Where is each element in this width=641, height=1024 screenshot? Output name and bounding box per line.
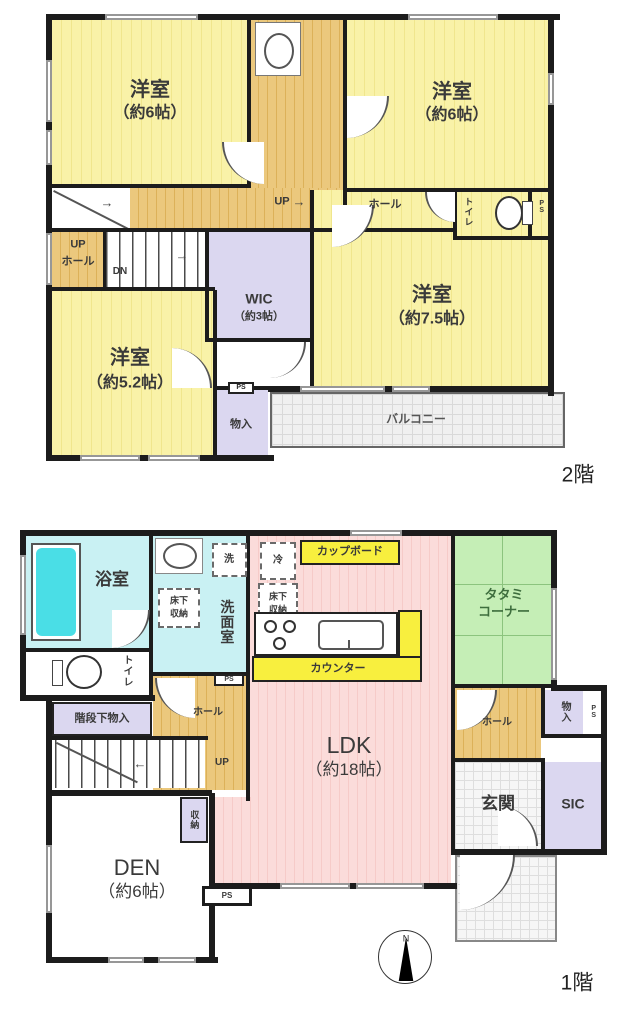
- bath-label: 浴室: [95, 570, 129, 590]
- wall: [453, 236, 554, 240]
- room-label: 洋室: [432, 80, 472, 104]
- arrow-right-icon: →: [293, 194, 306, 210]
- room-size-label: （約7.5帖）: [389, 309, 475, 328]
- window: [356, 883, 424, 889]
- arrow-left-icon: ←: [134, 756, 147, 772]
- fridge-label: 冷: [273, 555, 283, 567]
- wall-outer: [551, 530, 557, 592]
- window: [46, 845, 52, 913]
- understairs-label: 階段下物入: [75, 712, 130, 725]
- dn-label: DN: [113, 266, 127, 278]
- wall-outer: [548, 14, 554, 396]
- hall-label: ホール: [482, 717, 512, 729]
- wic-label: WIC: [245, 291, 272, 308]
- wall-outer: [551, 685, 607, 691]
- room-label: 洋室: [110, 346, 150, 370]
- room-size-label: （約5.2帖）: [87, 373, 173, 392]
- wall: [209, 793, 215, 963]
- window: [350, 530, 402, 536]
- hall-label: ホール: [62, 255, 95, 268]
- wall: [103, 232, 106, 290]
- floorplan-canvas: → → → 洋室 （約6帖） 洋室 （約6帖） ホール UP: [0, 0, 641, 1024]
- toilet-label: トイレ: [120, 655, 132, 688]
- washbasin-bowl-icon: [163, 543, 197, 569]
- room-label: 洋室: [130, 78, 170, 102]
- stairs-1f: [55, 740, 205, 788]
- room-label: 洋室: [412, 283, 452, 307]
- window: [108, 957, 144, 963]
- compass-needle-icon: [393, 937, 419, 981]
- window: [158, 957, 196, 963]
- window: [300, 386, 385, 392]
- bathtub-1f: [31, 543, 81, 641]
- up-label: UP: [274, 195, 289, 208]
- wall: [205, 232, 209, 342]
- floor1-title: 1階: [561, 970, 594, 995]
- wall: [52, 228, 457, 232]
- wall: [541, 688, 545, 738]
- ldk-label: LDK: [327, 732, 372, 760]
- ldk-size-label: （約18帖）: [306, 760, 393, 780]
- hall-label: ホール: [193, 707, 223, 719]
- closet-label: 物入: [558, 701, 570, 723]
- hall-label: ホール: [369, 198, 402, 211]
- window: [46, 60, 52, 122]
- window: [46, 233, 52, 285]
- window: [551, 588, 557, 680]
- counter-label: カウンター: [311, 662, 366, 675]
- up-label: UP: [70, 238, 85, 251]
- den-label: DEN: [114, 855, 160, 881]
- washbasin-2f: [255, 22, 301, 76]
- ps-label: PS: [236, 384, 245, 392]
- tatami-label: タタミ: [484, 587, 523, 603]
- wall: [451, 688, 455, 855]
- window: [148, 455, 200, 461]
- up-label: UP: [215, 757, 229, 769]
- window: [20, 555, 26, 635]
- window: [392, 386, 430, 392]
- wall: [20, 695, 155, 701]
- sic-label: SIC: [561, 796, 584, 813]
- closet-label: 物入: [230, 418, 252, 431]
- window: [80, 455, 140, 461]
- arrow-right-icon: →: [176, 248, 189, 264]
- wall-outer: [601, 685, 607, 855]
- ldk-1f-extension: [215, 797, 251, 883]
- wall: [451, 530, 455, 688]
- toilet-tank-2f: [522, 201, 533, 225]
- kitchen-sink: [318, 620, 384, 650]
- shuno-label: 収納: [189, 810, 200, 830]
- wall: [246, 676, 250, 801]
- wic-size-label: （約3帖）: [234, 310, 284, 323]
- wall: [310, 190, 314, 390]
- wic-2f: [207, 232, 312, 340]
- wall: [46, 790, 212, 796]
- wall: [213, 290, 217, 455]
- stove-burner-icon: [273, 637, 286, 650]
- toilet-bowl-icon-2f: [495, 196, 523, 230]
- den-size-label: （約6帖）: [98, 882, 175, 902]
- ps-label: PS: [222, 891, 233, 901]
- ps-label: PS: [224, 676, 233, 684]
- stove-burner-icon: [264, 620, 277, 633]
- sink-tap-icon: [348, 640, 350, 650]
- bathtub-water: [36, 548, 76, 636]
- toilet-bowl-icon-1f: [66, 655, 102, 689]
- wall: [455, 758, 545, 762]
- window: [280, 883, 350, 889]
- window: [408, 14, 498, 20]
- washbasin-1f: [155, 538, 203, 574]
- tatami-label: コーナー: [478, 604, 530, 620]
- wall: [52, 287, 215, 291]
- window: [548, 73, 554, 105]
- wall: [541, 734, 607, 738]
- floor2-title: 2階: [562, 462, 595, 487]
- toilet-tank-1f: [52, 660, 63, 686]
- toilet-label: トイレ: [463, 197, 474, 227]
- tatami-grid-line: [455, 635, 551, 636]
- washer-label: 洗: [224, 554, 234, 566]
- kitchen-counter: [254, 612, 398, 656]
- underfloor-label: 床下: [269, 592, 287, 603]
- room-size-label: （約6帖）: [416, 105, 489, 124]
- cupboard-label: カップボード: [317, 545, 383, 558]
- ps-label: PS: [537, 200, 545, 214]
- compass: N: [378, 930, 432, 984]
- wall: [20, 648, 153, 652]
- wall: [541, 758, 545, 853]
- arrow-right-icon: →: [101, 195, 114, 211]
- wall-outer: [20, 530, 557, 536]
- stove-burner-icon: [283, 620, 296, 633]
- washroom-label: 洗面室: [219, 600, 236, 645]
- entrance-label: 玄関: [481, 794, 515, 814]
- wall: [52, 184, 251, 188]
- window: [105, 14, 198, 20]
- washbasin-bowl-icon: [264, 33, 294, 69]
- wall: [52, 736, 208, 740]
- tatami-grid-line: [455, 584, 551, 585]
- room-size-label: （約6帖）: [114, 103, 187, 122]
- window: [46, 130, 52, 165]
- balcony-label: バルコニー: [386, 412, 446, 426]
- ps-label: PS: [589, 705, 597, 719]
- wall-outer: [46, 697, 52, 963]
- underfloor-label: 床下: [170, 596, 188, 607]
- underfloor-label: 収納: [170, 609, 188, 620]
- underfloor-label: 収納: [269, 605, 287, 616]
